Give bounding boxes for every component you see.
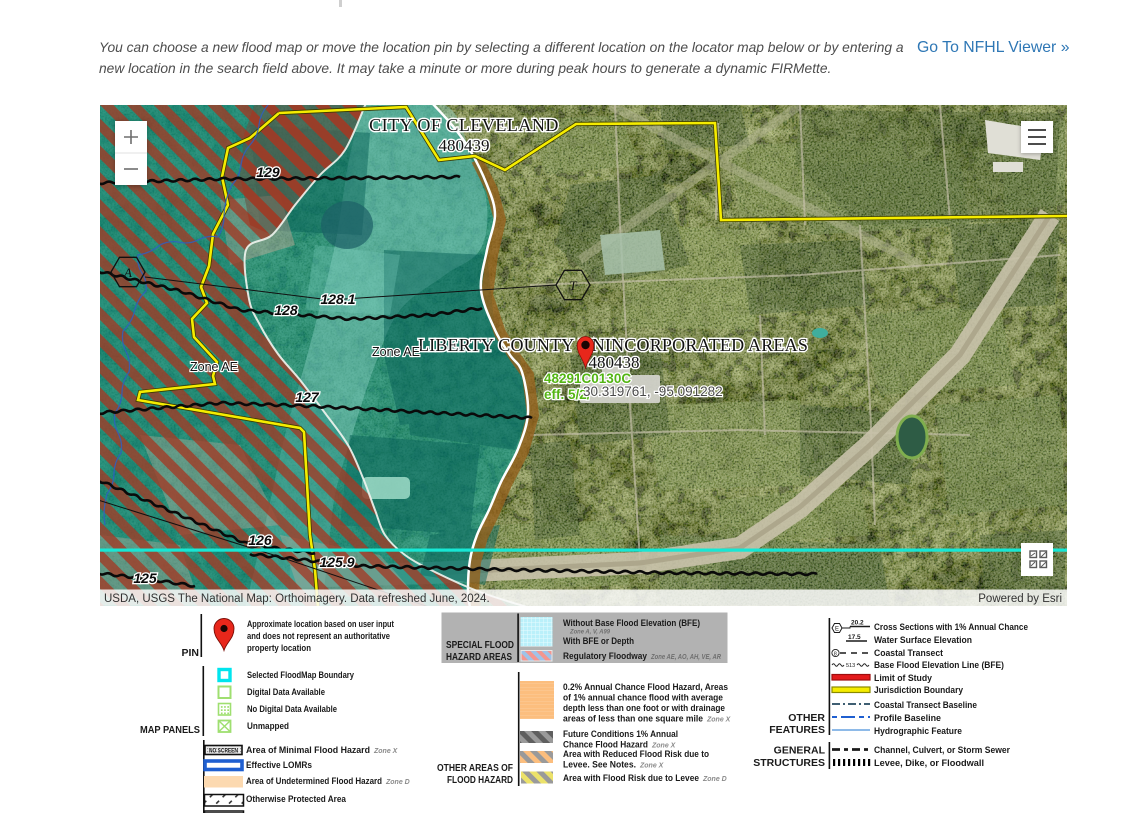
svg-text:MAP PANELS: MAP PANELS xyxy=(140,724,200,736)
svg-text:Without Base Flood Elevation (: Without Base Flood Elevation (BFE) xyxy=(563,618,700,628)
svg-text:Unmapped: Unmapped xyxy=(247,721,289,731)
svg-text:Zone AE, AO, AH, VE, AR: Zone AE, AO, AH, VE, AR xyxy=(650,654,721,661)
svg-text:125: 125 xyxy=(133,570,157,586)
svg-text:property location: property location xyxy=(247,643,311,653)
svg-text:T: T xyxy=(569,278,577,293)
svg-text:Zone D: Zone D xyxy=(702,776,727,783)
svg-text:Area with Flood Risk due to Le: Area with Flood Risk due to Levee xyxy=(563,773,699,783)
svg-text:Zone X: Zone X xyxy=(639,763,665,770)
svg-text:Zone AE: Zone AE xyxy=(372,345,420,359)
svg-text:128: 128 xyxy=(274,302,298,318)
svg-text:Digital Data Available: Digital Data Available xyxy=(247,687,325,697)
svg-text:Regulatory Floodway: Regulatory Floodway xyxy=(563,651,647,661)
svg-text:Jurisdiction Boundary: Jurisdiction Boundary xyxy=(874,685,963,695)
svg-text:Coastal Transect Baseline: Coastal Transect Baseline xyxy=(874,700,977,710)
svg-text:HAZARD AREAS: HAZARD AREAS xyxy=(446,651,512,663)
svg-text:areas of less than one square: areas of less than one square mile xyxy=(563,714,703,724)
svg-text:Area of Minimal Flood Hazard: Area of Minimal Flood Hazard xyxy=(246,745,370,755)
svg-text:Hydrographic Feature: Hydrographic Feature xyxy=(874,726,962,736)
svg-text:OTHER: OTHER xyxy=(788,712,825,724)
svg-text:LIBERTY COUNTY UNINCORPORATED: LIBERTY COUNTY UNINCORPORATED AREAS xyxy=(418,335,808,355)
svg-text:Channel, Culvert, or Storm Sew: Channel, Culvert, or Storm Sewer xyxy=(874,745,1010,755)
svg-text:Chance Flood Hazard: Chance Flood Hazard xyxy=(563,740,648,750)
svg-text:129: 129 xyxy=(256,164,280,180)
svg-text:and does not represent an auth: and does not represent an authoritative xyxy=(247,631,390,641)
svg-text:FEATURES: FEATURES xyxy=(769,724,825,736)
svg-text:Powered by Esri: Powered by Esri xyxy=(978,593,1062,605)
svg-text:Zone D: Zone D xyxy=(385,779,410,786)
svg-text:Zone X: Zone X xyxy=(373,748,399,755)
svg-text:126: 126 xyxy=(248,532,272,548)
svg-text:8: 8 xyxy=(834,651,837,657)
svg-text:Future Conditions 1% Annual: Future Conditions 1% Annual xyxy=(563,729,678,739)
svg-text:480438: 480438 xyxy=(589,353,640,372)
svg-text:Zone X: Zone X xyxy=(706,717,732,724)
svg-text:NO SCREEN: NO SCREEN xyxy=(209,749,238,755)
svg-text:Limit of Study: Limit of Study xyxy=(874,673,932,683)
svg-text:480439: 480439 xyxy=(439,136,490,155)
svg-text:STRUCTURES: STRUCTURES xyxy=(753,757,825,769)
svg-text:Otherwise Protected Area: Otherwise Protected Area xyxy=(246,794,347,804)
svg-text:FLOOD HAZARD: FLOOD HAZARD xyxy=(447,774,513,786)
svg-text:SPECIAL FLOOD: SPECIAL FLOOD xyxy=(446,639,514,651)
svg-text:CITY OF CLEVELAND: CITY OF CLEVELAND xyxy=(369,115,559,135)
svg-text:Profile Baseline: Profile Baseline xyxy=(874,713,941,723)
svg-text:Zone A, V, A99: Zone A, V, A99 xyxy=(569,629,610,636)
svg-text:USDA, USGS The National Map: O: USDA, USGS The National Map: Orthoimager… xyxy=(104,593,490,605)
svg-text:513: 513 xyxy=(846,663,855,669)
svg-text:Water Surface Elevation: Water Surface Elevation xyxy=(874,635,972,645)
svg-text:Levee, Dike, or Floodwall: Levee, Dike, or Floodwall xyxy=(874,758,984,768)
svg-text:With BFE or Depth: With BFE or Depth xyxy=(563,636,634,646)
svg-text:Effective LOMRs: Effective LOMRs xyxy=(246,760,312,770)
svg-text:125.9: 125.9 xyxy=(319,554,354,570)
svg-text:E: E xyxy=(835,627,839,633)
svg-text:GENERAL: GENERAL xyxy=(774,745,826,757)
svg-text:PIN: PIN xyxy=(181,647,199,659)
svg-text:0.2% Annual Chance Flood Hazar: 0.2% Annual Chance Flood Hazard, Areas xyxy=(563,682,728,692)
svg-text:Coastal Transect: Coastal Transect xyxy=(874,648,943,658)
svg-text:17.5: 17.5 xyxy=(848,634,861,641)
svg-text:Approximate location based on: Approximate location based on user input xyxy=(247,619,394,629)
svg-text:Levee. See Notes.: Levee. See Notes. xyxy=(563,760,636,770)
svg-text:Selected FloodMap Boundary: Selected FloodMap Boundary xyxy=(247,670,354,680)
svg-text:Zone AE: Zone AE xyxy=(190,360,238,374)
svg-text:No Digital Data Available: No Digital Data Available xyxy=(247,704,337,714)
svg-text:30.319761, -95.091282: 30.319761, -95.091282 xyxy=(583,384,723,399)
svg-text:Area of Undetermined Flood Haz: Area of Undetermined Flood Hazard xyxy=(246,776,382,786)
svg-text:Base Flood Elevation Line (BFE: Base Flood Elevation Line (BFE) xyxy=(874,660,1004,670)
svg-text:of 1% annual chance flood with: of 1% annual chance flood with average xyxy=(563,693,723,703)
svg-text:OTHER AREAS OF: OTHER AREAS OF xyxy=(437,762,513,774)
svg-text:127: 127 xyxy=(295,389,320,405)
svg-text:Area with Reduced Flood Risk d: Area with Reduced Flood Risk due to xyxy=(563,749,709,759)
svg-text:Cross Sections with 1% Annual: Cross Sections with 1% Annual Chance xyxy=(874,622,1028,632)
svg-text:20.2: 20.2 xyxy=(851,620,864,627)
svg-text:depth less than one foot or wi: depth less than one foot or with drainag… xyxy=(563,703,725,713)
svg-text:A: A xyxy=(123,265,132,280)
svg-text:128.1: 128.1 xyxy=(320,291,355,307)
